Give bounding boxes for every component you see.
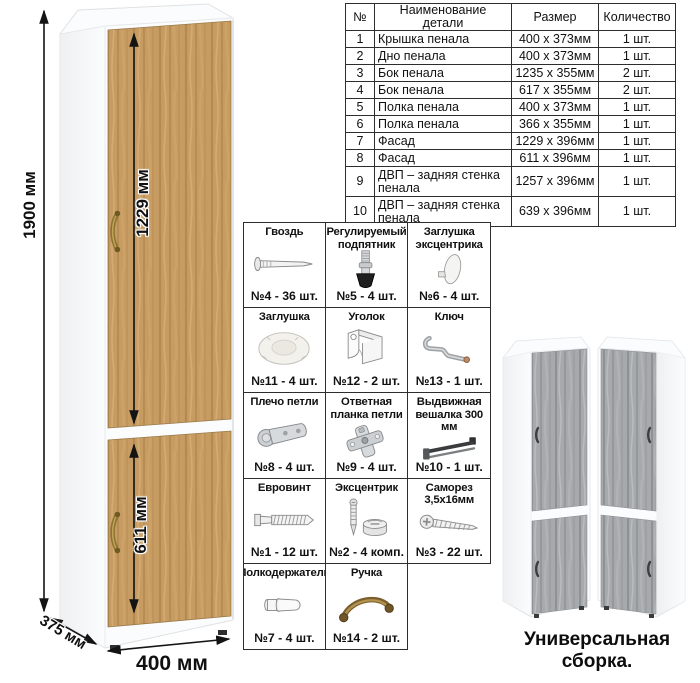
nail-icon bbox=[251, 239, 317, 289]
corner-bracket-icon bbox=[339, 323, 393, 374]
table-cell: 1 шт. bbox=[599, 167, 676, 197]
hardware-item-count: №10 - 1 шт. bbox=[416, 460, 483, 478]
hardware-item-title: Эксцентрик bbox=[334, 479, 399, 495]
hardware-item-count: №7 - 4 шт. bbox=[254, 631, 314, 649]
table-row: 1 Крышка пенала 400 х 373мм 1 шт. bbox=[346, 31, 676, 48]
hinge-plate-icon bbox=[340, 421, 392, 459]
hardware-item-title: Ответная планка петли bbox=[326, 393, 408, 421]
hardware-item-count: №11 - 4 шт. bbox=[251, 374, 318, 392]
hardware-item-title: Регулируемый подпятник bbox=[326, 223, 408, 251]
table-row: 4 Бок пенала 617 х 355мм 2 шт. bbox=[346, 82, 676, 99]
table-cell: 1 шт. bbox=[599, 99, 676, 116]
hardware-item-title: Полкодержатель bbox=[243, 564, 326, 580]
assembly-caption: Универсальная сборка. bbox=[492, 629, 700, 673]
table-cell: 1 bbox=[346, 31, 375, 48]
table-header-row: № Наименование детали Размер Количество bbox=[346, 4, 676, 31]
table-cell: 1235 х 355мм bbox=[512, 65, 599, 82]
hardware-item: Выдвижная вешалка 300 мм №10 - 1 шт. bbox=[408, 393, 491, 479]
hardware-item: Уголок №12 - 2 шт. bbox=[326, 308, 409, 394]
self-tapping-screw-icon bbox=[418, 507, 480, 545]
lower-door-dimension-label: 611 мм bbox=[131, 486, 151, 564]
hardware-item: Полкодержатель №7 - 4 шт. bbox=[243, 564, 326, 650]
hex-key-icon bbox=[421, 323, 477, 374]
table-cell: 9 bbox=[346, 167, 375, 197]
table-header-cell: Наименование детали bbox=[375, 4, 512, 31]
table-cell: Крышка пенала bbox=[375, 31, 512, 48]
hardware-item-title: Плечо петли bbox=[249, 393, 319, 409]
cap-icon bbox=[254, 323, 314, 374]
hardware-item: Заглушка №11 - 4 шт. bbox=[243, 308, 326, 394]
table-row: 6 Полка пенала 366 х 355мм 1 шт. bbox=[346, 116, 676, 133]
hardware-item-count: №9 - 4 шт. bbox=[336, 460, 396, 478]
cam-lock-icon bbox=[341, 494, 391, 545]
table-cell: 639 х 396мм bbox=[512, 197, 599, 227]
variant-cabinet-right bbox=[598, 337, 685, 618]
table-cell: 2 шт. bbox=[599, 65, 676, 82]
table-cell: 5 bbox=[346, 99, 375, 116]
table-row: 8 Фасад 611 х 396мм 1 шт. bbox=[346, 150, 676, 167]
table-cell: 1 шт. bbox=[599, 48, 676, 65]
table-cell: 400 х 373мм bbox=[512, 99, 599, 116]
handle-icon bbox=[336, 580, 396, 631]
euro-screw-icon bbox=[251, 494, 317, 545]
hardware-item: Плечо петли №8 - 4 шт. bbox=[243, 393, 326, 479]
hardware-item-count: №3 - 22 шт. bbox=[416, 545, 483, 563]
variant-cabinet-left bbox=[503, 337, 590, 618]
table-cell: 1257 х 396мм bbox=[512, 167, 599, 197]
table-cell: 611 х 396мм bbox=[512, 150, 599, 167]
table-row: 3 Бок пенала 1235 х 355мм 2 шт. bbox=[346, 65, 676, 82]
table-cell: 617 х 355мм bbox=[512, 82, 599, 99]
table-cell: 1 шт. bbox=[599, 197, 676, 227]
hardware-item-count: №13 - 1 шт. bbox=[416, 374, 483, 392]
table-row: 2 Дно пенала 400 х 373мм 1 шт. bbox=[346, 48, 676, 65]
hardware-item-count: №4 - 36 шт. bbox=[251, 289, 318, 307]
hardware-item: Регулируемый подпятник №5 - 4 шт. bbox=[326, 222, 409, 308]
hardware-grid-empty-cell bbox=[408, 564, 491, 650]
parts-table: № Наименование детали Размер Количество … bbox=[345, 3, 676, 227]
table-cell: 400 х 373мм bbox=[512, 31, 599, 48]
table-cell: 3 bbox=[346, 65, 375, 82]
table-cell: 4 bbox=[346, 82, 375, 99]
table-cell: Дно пенала bbox=[375, 48, 512, 65]
hardware-item-count: №2 - 4 комп. bbox=[329, 545, 404, 563]
hardware-item: Евровинт №1 - 12 шт. bbox=[243, 479, 326, 565]
table-cell: 2 шт. bbox=[599, 82, 676, 99]
table-cell: 400 х 373мм bbox=[512, 48, 599, 65]
table-cell: 2 bbox=[346, 48, 375, 65]
table-cell: 1 шт. bbox=[599, 150, 676, 167]
adjustable-foot-icon bbox=[349, 251, 383, 288]
table-cell: 1 шт. bbox=[599, 133, 676, 150]
hardware-item: Саморез 3,5х16мм №3 - 22 шт. bbox=[408, 479, 491, 565]
table-cell: Бок пенала bbox=[375, 82, 512, 99]
hardware-item: Ручка №14 - 2 шт. bbox=[326, 564, 409, 650]
hardware-grid: Гвоздь №4 - 36 шт. Регулируемый подпятни… bbox=[243, 222, 491, 650]
table-cell: 1229 х 396мм bbox=[512, 133, 599, 150]
shelf-pin-icon bbox=[261, 580, 307, 631]
table-cell: Полка пенала bbox=[375, 99, 512, 116]
hardware-item-count: №8 - 4 шт. bbox=[254, 460, 314, 478]
hardware-item-count: №5 - 4 шт. bbox=[336, 289, 396, 307]
hardware-item-title: Ручка bbox=[350, 564, 383, 580]
hardware-item-title: Евровинт bbox=[257, 479, 312, 495]
table-cell: 7 bbox=[346, 133, 375, 150]
table-cell: Полка пенала bbox=[375, 116, 512, 133]
table-row: 5 Полка пенала 400 х 373мм 1 шт. bbox=[346, 99, 676, 116]
hardware-item-count: №14 - 2 шт. bbox=[333, 631, 400, 649]
hardware-item-title: Гвоздь bbox=[264, 223, 304, 239]
hardware-item: Гвоздь №4 - 36 шт. bbox=[243, 222, 326, 308]
table-cell: Фасад bbox=[375, 133, 512, 150]
hardware-item: Ключ №13 - 1 шт. bbox=[408, 308, 491, 394]
hardware-item-count: №6 - 4 шт. bbox=[419, 289, 479, 307]
lower-door bbox=[108, 431, 231, 627]
table-cell: 366 х 355мм bbox=[512, 116, 599, 133]
upper-door bbox=[108, 21, 231, 428]
hardware-item-count: №12 - 2 шт. bbox=[333, 374, 400, 392]
table-cell: 1 шт. bbox=[599, 116, 676, 133]
height-dimension-label: 1900 мм bbox=[20, 166, 40, 244]
pullout-hanger-icon bbox=[419, 434, 479, 460]
hardware-item: Эксцентрик №2 - 4 комп. bbox=[326, 479, 409, 565]
upper-door-dimension-label: 1229 мм bbox=[133, 164, 153, 242]
table-row: 7 Фасад 1229 х 396мм 1 шт. bbox=[346, 133, 676, 150]
table-cell: 8 bbox=[346, 150, 375, 167]
hardware-item: Заглушка эксцентрика №6 - 4 шт. bbox=[408, 222, 491, 308]
table-header-cell: № bbox=[346, 4, 375, 31]
hardware-item-title: Ключ bbox=[434, 308, 465, 324]
table-row: 9 ДВП – задняя стенка пенала 1257 х 396м… bbox=[346, 167, 676, 197]
cam-cap-icon bbox=[427, 251, 471, 288]
hardware-item-count: №1 - 12 шт. bbox=[251, 545, 318, 563]
table-header-cell: Размер bbox=[512, 4, 599, 31]
hinge-arm-icon bbox=[254, 409, 314, 460]
table-cell: 6 bbox=[346, 116, 375, 133]
table-cell: Бок пенала bbox=[375, 65, 512, 82]
cabinet-foot bbox=[218, 630, 227, 635]
hardware-item: Ответная планка петли №9 - 4 шт. bbox=[326, 393, 409, 479]
width-dimension-label: 400 мм bbox=[110, 652, 234, 676]
table-cell: Фасад bbox=[375, 150, 512, 167]
table-header-cell: Количество bbox=[599, 4, 676, 31]
table-cell: 1 шт. bbox=[599, 31, 676, 48]
hardware-item-title: Заглушка bbox=[258, 308, 311, 324]
hardware-item-title: Уголок bbox=[347, 308, 385, 324]
table-cell: ДВП – задняя стенка пенала bbox=[375, 167, 512, 197]
hardware-item-title: Саморез 3,5х16мм bbox=[408, 479, 490, 507]
hardware-item-title: Заглушка эксцентрика bbox=[408, 223, 490, 251]
